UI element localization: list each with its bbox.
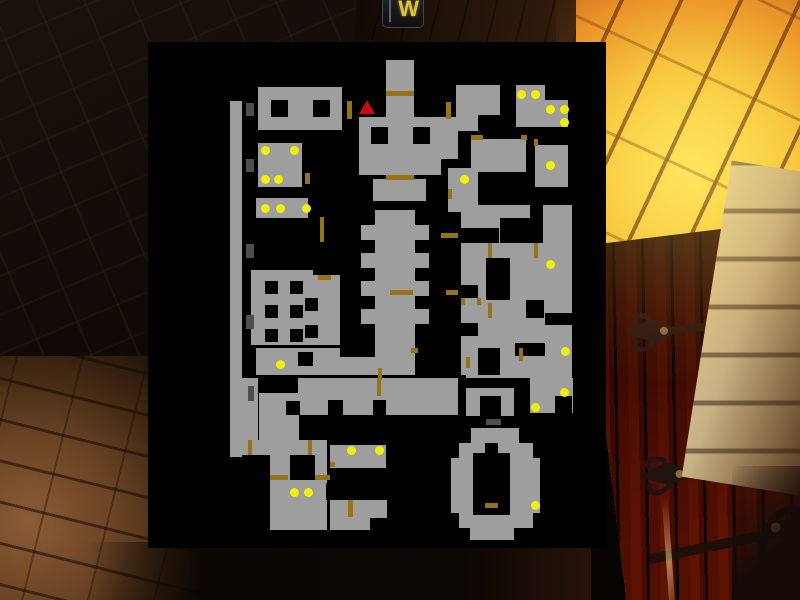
map-door [471, 135, 483, 140]
map-floor-area [456, 115, 478, 131]
map-wall-pillar [485, 443, 498, 456]
automap-panel [148, 42, 606, 548]
map-door [488, 243, 492, 258]
map-floor-area [415, 309, 429, 324]
map-wall-pillar [305, 298, 318, 311]
map-door [446, 102, 451, 119]
map-floor-area [323, 357, 375, 375]
player-marker [359, 100, 375, 114]
map-door [348, 500, 353, 517]
map-item-dot [561, 347, 570, 356]
shadow-bottom [86, 542, 591, 600]
map-wall-pillar [305, 325, 318, 338]
map-door [386, 175, 414, 180]
map-door [386, 91, 414, 96]
map-door [534, 243, 538, 258]
map-wall-pillar [265, 305, 278, 318]
map-door [446, 290, 458, 295]
map-item-dot [375, 446, 384, 455]
map-wall-pillar [457, 323, 478, 336]
map-floor-area [242, 440, 327, 455]
shadow-bottom-right [732, 466, 800, 600]
map-item-dot [261, 204, 270, 213]
map-wall-pillar [457, 285, 478, 298]
map-wall-pillar [371, 127, 388, 144]
map-wall-pillar [526, 300, 544, 318]
map-item-dot [560, 105, 569, 114]
map-floor-area [386, 60, 414, 117]
map-item-dot [560, 118, 569, 127]
map-item-dot [531, 90, 540, 99]
map-wall-pillar [286, 401, 300, 415]
map-floor-area [470, 528, 514, 540]
map-wall-pillar [290, 455, 315, 480]
map-door [477, 298, 481, 305]
map-door-mark [246, 315, 254, 329]
map-door [347, 101, 352, 119]
map-floor-area [415, 225, 429, 240]
map-door [521, 135, 527, 140]
map-door [318, 275, 331, 280]
map-door-mark [246, 103, 254, 116]
map-door [448, 189, 452, 199]
map-item-dot [276, 360, 285, 369]
map-door [320, 217, 324, 242]
map-door [488, 303, 492, 318]
map-wall-pillar [555, 396, 572, 413]
map-wall-pillar [530, 205, 543, 243]
map-door [330, 462, 335, 467]
map-door [441, 233, 458, 238]
map-door [308, 440, 312, 455]
map-item-dot [517, 90, 526, 99]
map-floor-area [361, 225, 375, 240]
map-item-dot [276, 204, 285, 213]
map-door [390, 290, 413, 295]
map-door-mark [246, 244, 254, 258]
map-door [461, 298, 465, 305]
map-wall-pillar [313, 100, 330, 117]
map-floor-area [471, 428, 519, 443]
map-door [248, 440, 252, 455]
map-floor-area [459, 513, 533, 528]
map-floor-area [362, 500, 370, 530]
map-door [377, 378, 381, 396]
map-floor-area [361, 281, 375, 296]
map-wall-pillar [326, 483, 370, 500]
map-item-dot [560, 388, 569, 397]
map-wall-pillar [328, 400, 343, 415]
compass-indicator: W [382, 0, 424, 28]
map-floor-area [415, 281, 429, 296]
map-floor-area [456, 85, 500, 115]
map-door-mark [248, 386, 254, 401]
map-wall-pillar [545, 313, 573, 325]
map-wall-pillar [486, 258, 510, 300]
map-door [466, 357, 470, 368]
game-viewport: W [0, 0, 800, 600]
map-floor-area [471, 139, 526, 172]
map-floor-area [230, 101, 242, 457]
map-item-dot [531, 403, 540, 412]
map-item-dot [460, 175, 469, 184]
map-wall-pillar [478, 348, 500, 375]
map-wall-pillar [271, 100, 288, 117]
compass-divider [389, 0, 391, 22]
map-wall-pillar [265, 329, 278, 342]
map-item-dot [347, 446, 356, 455]
map-wall-pillar [290, 281, 303, 294]
map-wall-pillar [480, 396, 501, 416]
map-wall-pillar [298, 352, 313, 366]
map-wall-pillar [457, 228, 499, 243]
map-item-dot [546, 105, 555, 114]
map-door [315, 475, 330, 480]
map-floor-area [359, 117, 441, 175]
map-floor-area [361, 253, 375, 268]
map-door [519, 348, 523, 361]
map-door [534, 139, 538, 146]
map-floor-area [330, 500, 387, 518]
map-door-mark [246, 159, 254, 172]
map-item-dot [304, 488, 313, 497]
map-door [270, 475, 288, 480]
map-item-dot [261, 175, 270, 184]
map-floor-area [330, 518, 362, 530]
map-item-dot [546, 161, 555, 170]
map-wall-pillar [413, 127, 430, 144]
map-door [411, 348, 418, 353]
map-wall-pillar [265, 281, 278, 294]
map-floor-area [373, 179, 426, 201]
map-item-dot [546, 260, 555, 269]
map-floor-area [415, 253, 429, 268]
map-item-dot [302, 204, 311, 213]
map-door [305, 173, 310, 184]
map-wall-pillar [500, 218, 530, 243]
map-door-mark [486, 419, 501, 425]
map-item-dot [274, 175, 283, 184]
compass-direction-label: W [398, 0, 423, 20]
map-item-dot [290, 488, 299, 497]
map-wall-pillar [373, 400, 386, 415]
map-item-dot [290, 146, 299, 155]
map-item-dot [261, 146, 270, 155]
map-floor-area [361, 309, 375, 324]
map-wall-pillar [290, 329, 303, 342]
map-item-dot [531, 501, 540, 510]
map-door [485, 503, 498, 508]
map-wall-pillar [290, 305, 303, 318]
